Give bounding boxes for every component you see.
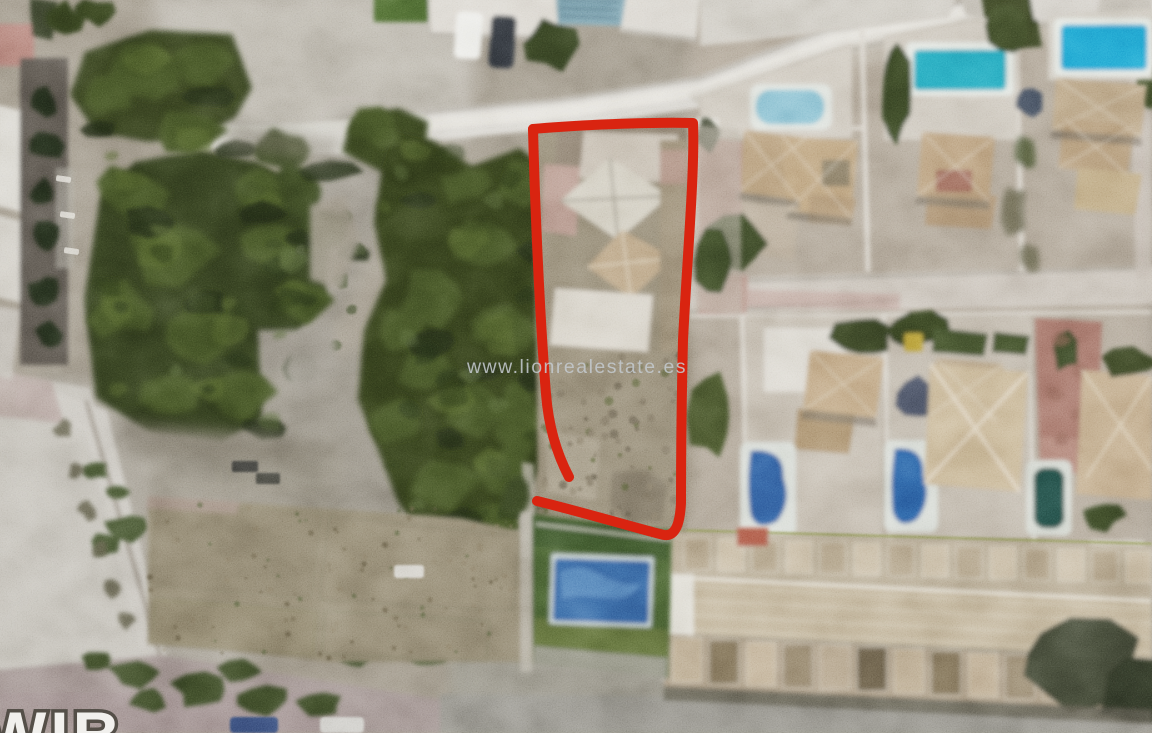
- svg-text:WIB: WIB: [0, 698, 124, 733]
- svg-text:www.lionrealestate.es: www.lionrealestate.es: [466, 356, 687, 378]
